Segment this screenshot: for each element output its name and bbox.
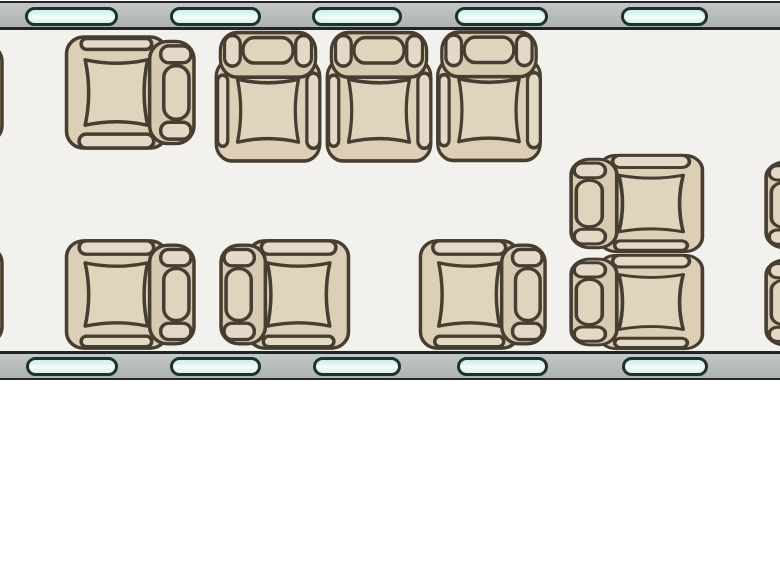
cabin-window-top-4 (455, 7, 548, 26)
cabin-window-bottom-3 (313, 357, 401, 376)
seat-icon (0, 36, 5, 151)
seat-pair-lower (568, 252, 705, 352)
seat-icon (434, 29, 544, 163)
seat-armrest-outer (261, 241, 336, 254)
seat-headrest-nub-b (513, 249, 543, 265)
divan-seat-2 (323, 29, 434, 163)
seat-armrest-inner (435, 336, 504, 347)
seat-cushion (237, 79, 298, 142)
cabin-window-bottom-5 (622, 357, 708, 376)
seat-lumbar-pill (354, 37, 404, 62)
seat-icon (218, 237, 351, 352)
seat-lumbar-pill (771, 183, 780, 228)
seat-icon (212, 29, 323, 163)
seat-lower-3 (418, 237, 548, 352)
seat-headrest-nub-b (517, 35, 533, 65)
cabin-window-top-1 (25, 7, 118, 26)
cabin-window-top-2 (170, 7, 261, 26)
seat-lumbar-pill (576, 280, 602, 325)
seat-single-forward (64, 33, 197, 152)
seat-headrest-nub-b (161, 249, 191, 265)
seat-armrest-inner (328, 75, 338, 146)
seat-headrest-nub-b (406, 35, 422, 65)
seat-icon (763, 253, 780, 352)
seat-armrest-outer (79, 134, 154, 148)
seat-lumbar-pill (771, 280, 780, 325)
seat-headrest-nub-a (161, 323, 191, 339)
seat-lumbar-pill (164, 269, 189, 321)
seat-clipped-right-upper (763, 155, 780, 255)
seat-pair-upper (568, 152, 705, 255)
seat-icon (568, 252, 705, 352)
seat-armrest-outer (79, 241, 154, 254)
seat-headrest-nub-b (295, 35, 311, 65)
seat-armrest-inner (81, 336, 152, 347)
cabin-window-top-5 (621, 7, 708, 26)
seat-armrest-inner (615, 241, 688, 250)
seat-headrest-nub-b (769, 264, 780, 278)
seat-lumbar-pill (226, 269, 251, 321)
seat-clipped-left-lower (0, 238, 5, 352)
seat-cushion (267, 263, 329, 326)
seat-cushion (85, 263, 147, 326)
divan-seat-3 (434, 29, 544, 163)
seat-armrest-outer (613, 255, 690, 267)
seat-headrest-nub-b (574, 263, 605, 277)
seat-cushion (619, 275, 683, 330)
seat-icon (418, 237, 548, 352)
cabin-window-top-3 (312, 7, 402, 26)
seat-cushion (619, 175, 683, 232)
divan-seat-1 (212, 29, 323, 163)
seat-armrest-outer (433, 241, 506, 254)
seat-armrest-inner (439, 75, 449, 146)
seat-headrest-nub-a (224, 323, 254, 339)
seat-lumbar-pill (243, 37, 293, 62)
seat-headrest-nub-b (224, 249, 254, 265)
seat-headrest-nub-a (574, 327, 605, 341)
seat-icon (763, 155, 780, 255)
cabin-window-bottom-4 (457, 357, 548, 376)
cabin-window-bottom-1 (26, 357, 118, 376)
seat-icon (64, 33, 197, 152)
seat-lower-1 (64, 237, 197, 352)
seat-headrest-nub-a (335, 35, 351, 65)
seat-armrest-outer (528, 73, 541, 148)
seat-cushion (439, 263, 500, 326)
seat-lumbar-pill (464, 37, 514, 62)
seat-headrest-nub-a (446, 35, 462, 65)
seat-headrest-nub-a (513, 323, 543, 339)
seat-clipped-right-lower (763, 253, 780, 352)
seat-headrest-nub-a (161, 46, 191, 63)
cabin-window-bottom-2 (170, 357, 261, 376)
seat-lumbar-pill (164, 66, 189, 120)
seat-headrest-nub-b (161, 122, 191, 139)
seat-headrest-nub-b (574, 163, 605, 178)
seat-cushion (459, 79, 520, 142)
seat-headrest-nub-b (769, 166, 780, 180)
seat-icon (323, 29, 434, 163)
seat-clipped-left-upper (0, 36, 5, 151)
seat-headrest-nub-a (224, 35, 240, 65)
seat-headrest-nub-a (769, 327, 780, 341)
seat-lumbar-pill (576, 180, 602, 226)
seat-armrest-inner (217, 75, 227, 146)
seat-armrest-outer (417, 73, 430, 148)
seat-armrest-inner (263, 336, 334, 347)
seat-icon (0, 238, 5, 352)
seat-cushion (85, 60, 147, 125)
seat-headrest-nub-a (574, 229, 605, 244)
seat-headrest-nub-a (769, 230, 780, 244)
seat-lower-2 (218, 237, 351, 352)
seat-armrest-inner (615, 338, 688, 347)
seat-icon (568, 152, 705, 255)
seat-lumbar-pill (516, 269, 541, 321)
seat-armrest-outer (613, 155, 690, 167)
cabin-plan (0, 0, 780, 574)
seat-icon (64, 237, 197, 352)
seat-armrest-inner (81, 38, 152, 49)
seat-armrest-outer (306, 73, 319, 148)
seat-cushion (348, 79, 409, 142)
